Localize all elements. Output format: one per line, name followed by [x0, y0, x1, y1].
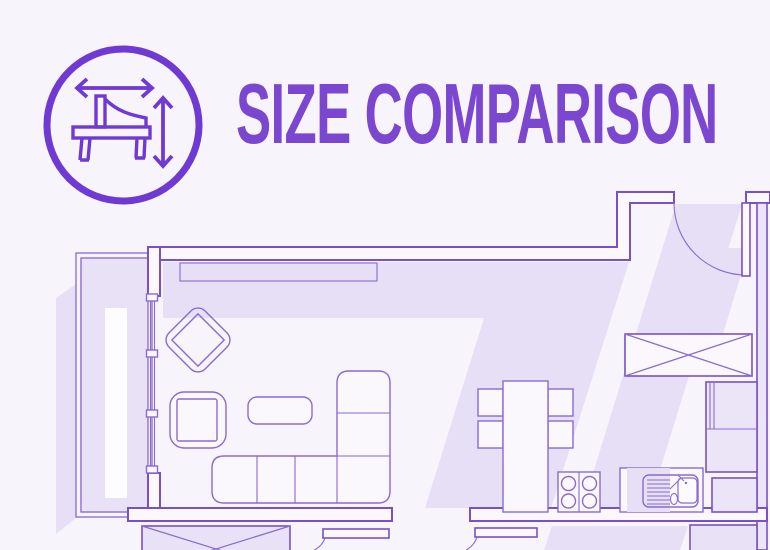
dining-chair [478, 421, 503, 448]
bottom-wall-left [128, 508, 392, 521]
balcony-floor-highlight [105, 308, 127, 498]
bottom-right-room [690, 525, 757, 550]
dining-chair [478, 389, 503, 416]
right-wall [757, 203, 767, 550]
sink-basin [678, 478, 697, 503]
height-arrow-icon [154, 98, 172, 166]
sink-drainboard [647, 480, 670, 504]
door-leaf [742, 203, 750, 276]
page: SIZE COMPARISON [0, 0, 770, 550]
badge-circle [47, 49, 199, 201]
piano-left-leg [80, 138, 90, 160]
interior-door-right [463, 528, 537, 550]
door-jamb-wall [746, 192, 770, 203]
stove [558, 472, 600, 512]
piano-icon [73, 96, 150, 160]
top-wall [148, 192, 674, 260]
wardrobe [625, 334, 752, 376]
brand-badge [40, 42, 206, 208]
left-wall-upper [148, 247, 160, 296]
width-arrow-icon [77, 79, 152, 97]
left-wall-lower [148, 473, 160, 512]
interior-door-left [311, 529, 389, 550]
coffee-table [248, 397, 312, 424]
page-title: SIZE COMPARISON [236, 72, 718, 157]
faucet-base [671, 494, 678, 505]
dining-chair [548, 389, 573, 416]
dining-table [503, 381, 548, 512]
corner-sofa [212, 371, 390, 503]
armchair [170, 392, 226, 448]
cabinet-block [712, 478, 757, 512]
piano-size-icon [73, 79, 172, 166]
kitchen-cabinets [706, 382, 757, 512]
kitchen-sink [620, 468, 703, 512]
dining-chair [548, 421, 573, 448]
storage-box [142, 526, 290, 550]
piano-right-leg [135, 138, 145, 158]
